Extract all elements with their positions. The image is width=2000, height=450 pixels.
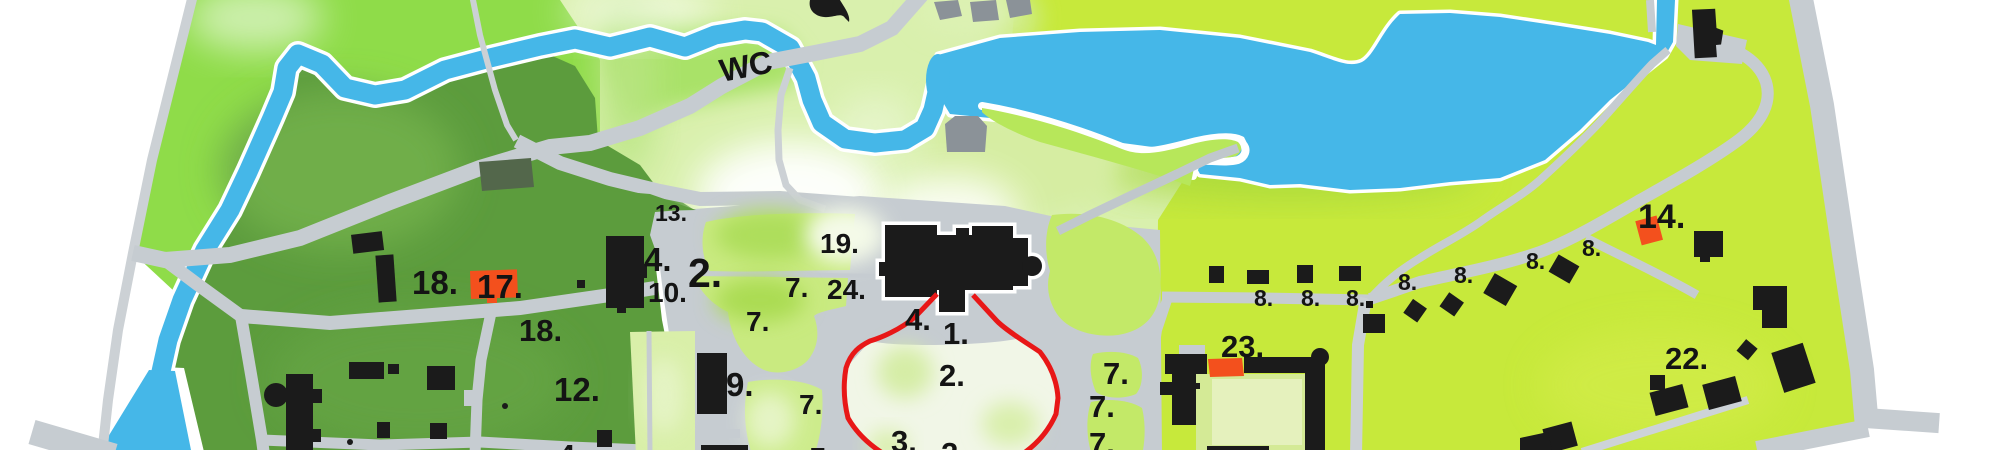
svg-text:8.: 8. xyxy=(1454,262,1473,288)
svg-text:7.: 7. xyxy=(1089,389,1115,424)
svg-text:1.: 1. xyxy=(943,316,969,351)
svg-text:2.: 2. xyxy=(688,250,722,296)
svg-text:7.: 7. xyxy=(1089,426,1115,450)
svg-text:3.: 3. xyxy=(891,424,917,450)
svg-text:14.: 14. xyxy=(1638,198,1685,236)
svg-text:13.: 13. xyxy=(655,200,687,226)
svg-text:12.: 12. xyxy=(554,371,600,408)
svg-text:18.: 18. xyxy=(519,313,562,348)
svg-text:19.: 19. xyxy=(820,228,859,259)
svg-text:8.: 8. xyxy=(1526,248,1545,274)
svg-text:2.: 2. xyxy=(941,436,967,450)
svg-text:7.: 7. xyxy=(799,389,822,420)
svg-text:17.: 17. xyxy=(477,268,523,305)
svg-text:10.: 10. xyxy=(648,277,687,308)
svg-text:7.: 7. xyxy=(810,442,833,450)
svg-text:9.: 9. xyxy=(726,366,754,403)
svg-text:23.: 23. xyxy=(1221,329,1264,364)
svg-text:7.: 7. xyxy=(1103,356,1129,391)
svg-text:8.: 8. xyxy=(1582,235,1601,261)
svg-text:24.: 24. xyxy=(827,274,866,305)
svg-text:8.: 8. xyxy=(1398,269,1417,295)
svg-text:8.: 8. xyxy=(1254,285,1273,311)
svg-text:2.: 2. xyxy=(939,358,965,393)
svg-text:4.: 4. xyxy=(644,241,672,278)
svg-text:7.: 7. xyxy=(785,272,808,303)
svg-text:18.: 18. xyxy=(412,264,458,301)
svg-text:22.: 22. xyxy=(1665,341,1708,376)
svg-text:4.: 4. xyxy=(558,438,584,450)
svg-text:8.: 8. xyxy=(1346,285,1365,311)
svg-text:4.: 4. xyxy=(905,302,931,337)
svg-text:8.: 8. xyxy=(1301,285,1320,311)
svg-text:7.: 7. xyxy=(746,306,769,337)
